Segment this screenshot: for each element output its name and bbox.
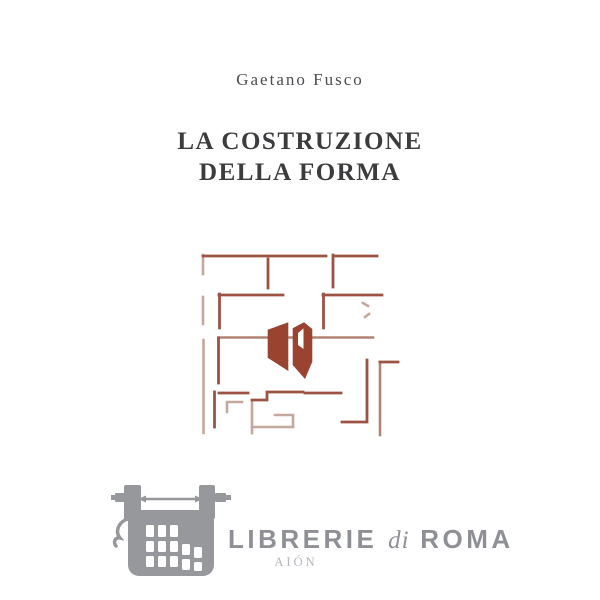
book-title-line1: LA COSTRUZIONE (0, 126, 600, 157)
author-name: Gaetano Fusco (0, 70, 600, 90)
floor-plan-drawing (190, 230, 430, 452)
watermark-di: di (388, 527, 409, 554)
watermark-roma: ROMA (420, 524, 513, 554)
bookstore-watermark: LIBRERIE di ROMA (228, 524, 488, 555)
book-cover-page: { "cover": { "author": "Gaetano Fusco", … (0, 0, 600, 600)
book-title: LA COSTRUZIONE DELLA FORMA (0, 126, 600, 188)
publisher-name: AIÓN (246, 555, 346, 570)
typewriter-icon (110, 480, 234, 589)
floor-plan-figure (190, 230, 430, 457)
book-title-line2: DELLA FORMA (0, 157, 600, 188)
watermark-librerie: LIBRERIE (228, 524, 377, 554)
